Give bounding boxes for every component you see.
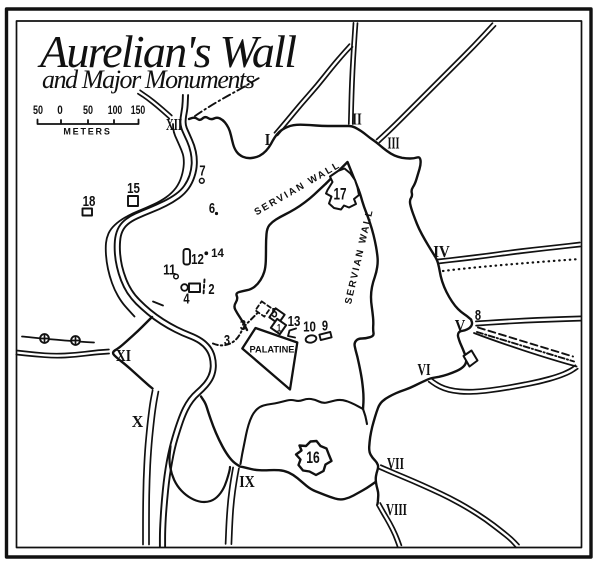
svg-text:18: 18	[83, 194, 96, 210]
svg-text:15: 15	[127, 181, 140, 197]
svg-text:14: 14	[211, 246, 224, 260]
svg-text:XII: XII	[166, 115, 182, 134]
svg-text:13: 13	[288, 314, 301, 330]
svg-text:10: 10	[303, 320, 316, 336]
svg-text:METERS: METERS	[63, 127, 111, 137]
svg-text:16: 16	[306, 449, 320, 467]
svg-text:II: II	[352, 110, 362, 129]
svg-text:III: III	[388, 134, 400, 153]
svg-text:1: 1	[277, 323, 281, 335]
svg-text:PALATINE: PALATINE	[250, 345, 295, 355]
svg-text:11: 11	[163, 263, 176, 279]
svg-text:4: 4	[183, 292, 189, 308]
svg-text:IX: IX	[239, 472, 255, 491]
svg-text:6: 6	[209, 201, 215, 217]
svg-text:XI: XI	[116, 346, 131, 365]
svg-text:2: 2	[208, 282, 214, 298]
svg-text:5: 5	[272, 306, 278, 321]
svg-text:100: 100	[108, 103, 123, 117]
svg-text:50: 50	[33, 103, 43, 117]
svg-text:17: 17	[334, 186, 347, 204]
svg-text:IV: IV	[433, 242, 450, 261]
svg-text:150: 150	[131, 103, 146, 117]
svg-text:I: I	[265, 130, 271, 149]
svg-text:VI: VI	[418, 360, 431, 379]
svg-text:3: 3	[240, 318, 246, 334]
svg-text:VII: VII	[387, 454, 404, 473]
svg-text:and Major Monuments: and Major Monuments	[42, 65, 255, 94]
svg-text:VIII: VIII	[386, 500, 407, 519]
svg-text:X: X	[132, 412, 144, 431]
svg-text:0: 0	[57, 103, 63, 117]
svg-text:3: 3	[224, 333, 230, 349]
svg-text:50: 50	[83, 103, 93, 117]
svg-text:V: V	[455, 316, 466, 335]
svg-text:12: 12	[191, 252, 204, 268]
svg-text:7: 7	[199, 164, 205, 180]
svg-text:8: 8	[475, 308, 481, 324]
svg-text:9: 9	[322, 319, 328, 335]
